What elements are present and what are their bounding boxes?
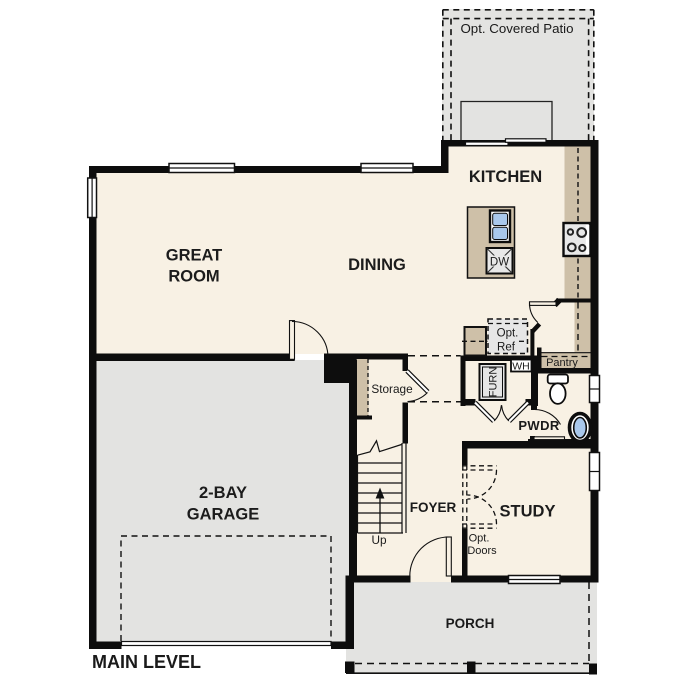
svg-text:PWDR: PWDR bbox=[518, 418, 560, 433]
svg-text:WH: WH bbox=[512, 361, 530, 373]
svg-text:Up: Up bbox=[371, 533, 387, 547]
svg-text:ROOM: ROOM bbox=[168, 268, 219, 286]
svg-text:Doors: Doors bbox=[467, 545, 497, 557]
svg-text:Opt.: Opt. bbox=[497, 328, 519, 340]
svg-text:Opt.: Opt. bbox=[469, 533, 490, 545]
svg-text:KITCHEN: KITCHEN bbox=[469, 168, 542, 186]
svg-text:Pantry: Pantry bbox=[546, 357, 578, 369]
svg-text:DINING: DINING bbox=[348, 256, 406, 274]
svg-text:STUDY: STUDY bbox=[500, 503, 556, 521]
svg-text:2-BAY: 2-BAY bbox=[199, 484, 247, 502]
svg-text:FURN: FURN bbox=[488, 367, 500, 398]
svg-text:Ref: Ref bbox=[497, 342, 516, 354]
svg-text:MAIN LEVEL: MAIN LEVEL bbox=[92, 652, 201, 672]
svg-text:Opt. Covered Patio: Opt. Covered Patio bbox=[460, 21, 573, 36]
svg-text:Storage: Storage bbox=[371, 382, 413, 396]
svg-text:PORCH: PORCH bbox=[446, 616, 495, 631]
svg-text:GARAGE: GARAGE bbox=[187, 506, 259, 524]
svg-text:FOYER: FOYER bbox=[410, 500, 457, 515]
svg-text:DW: DW bbox=[490, 257, 509, 269]
svg-text:GREAT: GREAT bbox=[166, 247, 223, 265]
